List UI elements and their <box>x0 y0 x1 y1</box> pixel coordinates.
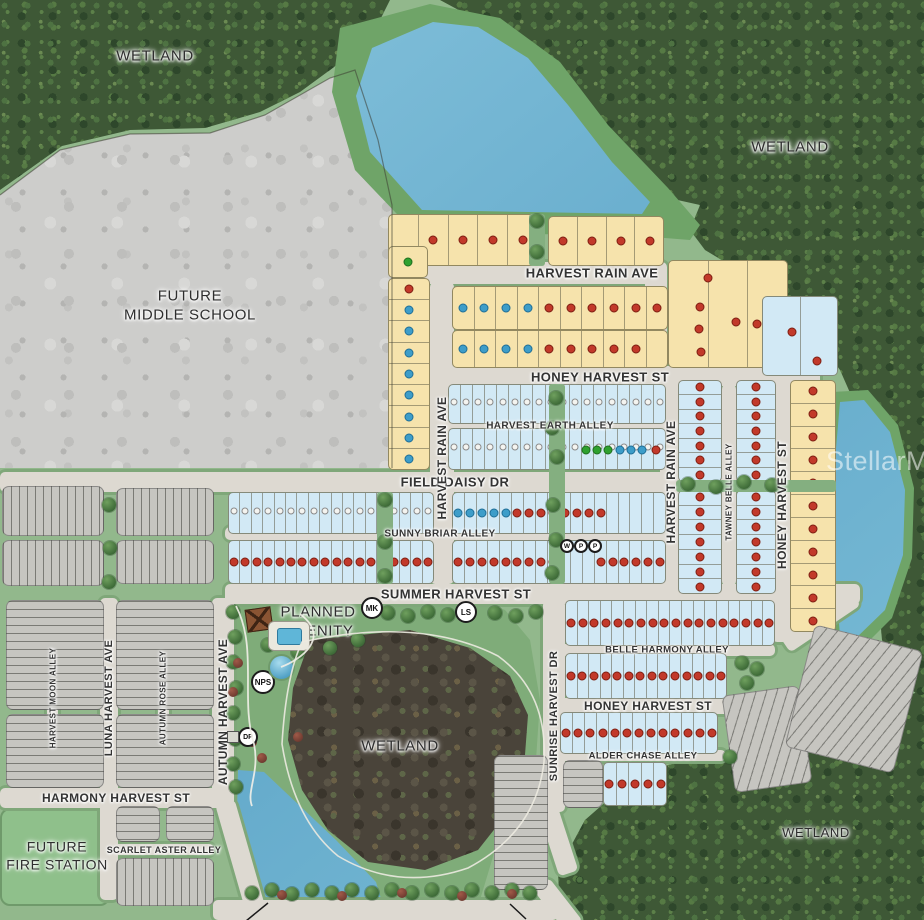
tree-icon <box>441 608 455 622</box>
lot-status-dot <box>695 729 704 738</box>
lot-number-circle <box>451 399 458 406</box>
lot-status-dot <box>613 619 622 628</box>
lot-status-dot <box>596 509 605 518</box>
map-marker-p: P <box>574 539 588 553</box>
lot-status-dot <box>578 672 587 681</box>
lot-status-dot <box>753 619 762 628</box>
lot-number-circle <box>322 507 329 514</box>
lot-status-dot <box>405 391 414 400</box>
lot-status-dot <box>717 672 726 681</box>
lot-status-dot <box>404 258 413 267</box>
tree-icon <box>229 780 243 794</box>
lot-status-dot <box>616 237 625 246</box>
lot-status-dot <box>601 672 610 681</box>
tree-icon <box>530 214 544 228</box>
lot-number-circle <box>310 507 317 514</box>
street-label: SUMMER HARVEST ST <box>381 587 531 602</box>
lot-status-dot <box>809 433 818 442</box>
lot-status-dot <box>638 446 647 455</box>
lot-status-dot <box>683 729 692 738</box>
tree-icon <box>226 605 240 619</box>
shrub-icon <box>257 753 267 763</box>
tree-icon <box>378 493 392 507</box>
lot-status-dot <box>659 672 668 681</box>
lot-status-dot <box>480 345 489 354</box>
lot-block <box>494 755 548 890</box>
lot-status-dot <box>752 508 761 517</box>
street-label: SCARLET ASTER ALLEY <box>107 845 221 855</box>
lot-status-dot <box>636 672 645 681</box>
lot-block <box>563 760 603 808</box>
street-label: HARMONY HARVEST ST <box>42 791 190 805</box>
lot-status-dot <box>465 509 474 518</box>
shrub-icon <box>337 891 347 901</box>
lot-status-dot <box>788 328 797 337</box>
street-label: HONEY HARVEST ST <box>531 370 669 385</box>
lot-number-circle <box>230 507 237 514</box>
lot-status-dot <box>405 370 414 379</box>
street-label: TAWNEY BELLE ALLEY <box>725 443 734 540</box>
street-label: HONEY HARVEST ST <box>775 441 789 569</box>
lot-block <box>762 296 838 376</box>
street-label: HARVEST RAIN AVE <box>664 421 678 544</box>
lot-number-circle <box>572 443 579 450</box>
lot-status-dot <box>696 456 705 465</box>
lot-status-dot <box>653 304 662 313</box>
lot-status-dot <box>405 327 414 336</box>
tree-icon <box>529 605 543 619</box>
lot-status-dot <box>401 558 410 567</box>
lot <box>629 493 641 533</box>
lot-status-dot <box>502 345 511 354</box>
lot-status-dot <box>412 558 421 567</box>
lot-status-dot <box>809 524 818 533</box>
lot-status-dot <box>813 357 822 366</box>
lot <box>618 493 630 533</box>
lot-status-dot <box>298 558 307 567</box>
tree-icon <box>405 886 419 900</box>
tree-icon <box>465 883 479 897</box>
lot-status-dot <box>566 345 575 354</box>
tree-icon <box>488 606 502 620</box>
lot-status-dot <box>405 348 414 357</box>
lot-status-dot <box>525 558 534 567</box>
lot-status-dot <box>574 729 583 738</box>
lot-number-circle <box>608 399 615 406</box>
lot-number-circle <box>276 507 283 514</box>
lot-status-dot <box>558 237 567 246</box>
street-label: HONEY HARVEST ST <box>584 699 712 713</box>
lot-status-dot <box>697 348 706 357</box>
street-label: BELLE HARMONY ALLEY <box>605 645 729 656</box>
lot-status-dot <box>671 729 680 738</box>
tree-icon <box>228 630 242 644</box>
lot-status-dot <box>752 427 761 436</box>
street-label: AUTUMN ROSE ALLEY <box>159 651 168 746</box>
lot-status-dot <box>696 412 705 421</box>
lot-status-dot <box>696 470 705 479</box>
amenity-pond-icon <box>268 654 295 681</box>
lot-status-dot <box>694 672 703 681</box>
lot-number-circle <box>265 507 272 514</box>
lot-status-dot <box>752 538 761 547</box>
lot-block <box>116 858 214 906</box>
lot-status-dot <box>683 619 692 628</box>
lot-status-dot <box>616 446 625 455</box>
lot-status-dot <box>610 729 619 738</box>
tree-icon <box>381 606 395 620</box>
lot-status-dot <box>610 345 619 354</box>
lot-status-dot <box>405 455 414 464</box>
lot-status-dot <box>696 383 705 392</box>
street-label: SUNRISE HARVEST DR <box>548 651 560 781</box>
lot-status-dot <box>636 619 645 628</box>
lot <box>606 493 618 533</box>
tree-icon <box>735 656 749 670</box>
tree-icon <box>378 569 392 583</box>
street-label: AUTUMN HARVEST AVE <box>216 639 230 785</box>
lot-status-dot <box>752 397 761 406</box>
shrub-icon <box>507 889 517 899</box>
lot-status-dot <box>590 619 599 628</box>
lot-status-dot <box>610 304 619 313</box>
lot-status-dot <box>537 509 546 518</box>
lot-status-dot <box>489 509 498 518</box>
lot-status-dot <box>696 552 705 561</box>
street-label: HARVEST EARTH ALLEY <box>486 421 614 432</box>
lot-status-dot <box>309 558 318 567</box>
lot-status-dot <box>696 303 705 312</box>
lot-status-dot <box>695 619 704 628</box>
tree-icon <box>365 886 379 900</box>
lot-status-dot <box>566 672 575 681</box>
lot-status-dot <box>321 558 330 567</box>
lot-number-circle <box>523 443 530 450</box>
lot-status-dot <box>696 538 705 547</box>
lot-status-dot <box>572 509 581 518</box>
lot-status-dot <box>644 558 653 567</box>
tree-icon <box>345 883 359 897</box>
tree-icon <box>737 475 751 489</box>
lot-number-circle <box>425 507 432 514</box>
lot-number-circle <box>413 507 420 514</box>
lot-status-dot <box>252 558 261 567</box>
tree-icon <box>509 609 523 623</box>
lot-status-dot <box>752 383 761 392</box>
street-label: HARVEST RAIN AVE <box>435 397 449 520</box>
street-label: ALDER CHASE ALLEY <box>589 751 698 762</box>
lot-status-dot <box>429 236 438 245</box>
area-label: WETLAND <box>751 139 829 158</box>
lot-status-dot <box>718 619 727 628</box>
area-label: WETLAND <box>116 48 194 67</box>
shrub-icon <box>277 890 287 900</box>
lot-block <box>116 540 214 584</box>
street-label: LUNA HARVEST AVE <box>103 640 115 756</box>
lot-number-circle <box>475 443 482 450</box>
lot-number-circle <box>475 399 482 406</box>
lot-status-dot <box>631 780 640 789</box>
lot-status-dot <box>465 558 474 567</box>
tree-icon <box>681 477 695 491</box>
lot <box>708 261 748 367</box>
lot-number-circle <box>511 443 518 450</box>
lot-number-circle <box>535 443 542 450</box>
lot-block <box>116 488 214 536</box>
tree-icon <box>523 886 537 900</box>
lot-status-dot <box>477 509 486 518</box>
lot-status-dot <box>562 729 571 738</box>
lot-status-dot <box>584 509 593 518</box>
lot-status-dot <box>625 619 634 628</box>
lot-status-dot <box>582 446 591 455</box>
lot-status-dot <box>586 729 595 738</box>
lot-number-circle <box>299 507 306 514</box>
lot-status-dot <box>344 558 353 567</box>
lot-status-dot <box>513 558 522 567</box>
tree-icon <box>425 883 439 897</box>
lot-status-dot <box>241 558 250 567</box>
lot-number-circle <box>368 507 375 514</box>
map-marker-mk: MK <box>361 597 383 619</box>
watermark: StellarMLS <box>826 446 924 477</box>
lot-number-circle <box>535 399 542 406</box>
lot-status-dot <box>523 304 532 313</box>
tree-icon <box>102 498 116 512</box>
lot-status-dot <box>809 502 818 511</box>
lot-status-dot <box>809 570 818 579</box>
lot-status-dot <box>647 729 656 738</box>
lot-status-dot <box>741 619 750 628</box>
lot-status-dot <box>752 412 761 421</box>
lot-status-dot <box>578 619 587 628</box>
lot-status-dot <box>696 567 705 576</box>
lot-status-dot <box>545 345 554 354</box>
lot-status-dot <box>704 274 713 283</box>
lot-status-dot <box>459 236 468 245</box>
lot-status-dot <box>501 509 510 518</box>
amenity-pool-icon <box>277 628 302 645</box>
lot-status-dot <box>696 508 705 517</box>
tree-icon <box>103 541 117 555</box>
lot-number-circle <box>632 399 639 406</box>
lot-status-dot <box>671 619 680 628</box>
lot-status-dot <box>632 558 641 567</box>
tree-icon <box>421 605 435 619</box>
tree-icon <box>245 886 259 900</box>
lot-status-dot <box>656 780 665 789</box>
area-label: FUTURE FIRE STATION <box>6 839 108 874</box>
lot-status-dot <box>809 616 818 625</box>
lot-status-dot <box>458 345 467 354</box>
lot-status-dot <box>489 236 498 245</box>
tree-icon <box>545 566 559 580</box>
lot-status-dot <box>593 446 602 455</box>
lot-status-dot <box>604 446 613 455</box>
map-marker-ls: LS <box>455 601 477 623</box>
lot-number-circle <box>620 399 627 406</box>
lot-status-dot <box>696 582 705 591</box>
lot-status-dot <box>695 325 704 334</box>
lot-status-dot <box>453 558 462 567</box>
lot-number-circle <box>463 399 470 406</box>
lot <box>641 493 653 533</box>
street-label: HARVEST RAIN AVE <box>526 266 659 281</box>
lot-status-dot <box>566 304 575 313</box>
lot-number-circle <box>572 399 579 406</box>
lot-status-dot <box>566 619 575 628</box>
lot-block <box>116 806 160 842</box>
tree-icon <box>549 391 563 405</box>
lot-number-circle <box>644 399 651 406</box>
street-label: HARVEST MOON ALLEY <box>49 648 58 749</box>
area-label: WETLAND <box>361 738 439 757</box>
lot-number-circle <box>656 399 663 406</box>
lot-status-dot <box>682 672 691 681</box>
lot-status-dot <box>545 304 554 313</box>
lot-status-dot <box>229 558 238 567</box>
lot-status-dot <box>620 558 629 567</box>
area-label: WETLAND <box>782 825 850 841</box>
shrub-icon <box>457 891 467 901</box>
lot-status-dot <box>752 456 761 465</box>
lot-status-dot <box>405 412 414 421</box>
lot-status-dot <box>405 306 414 315</box>
lot-status-dot <box>670 672 679 681</box>
lot-number-circle <box>584 399 591 406</box>
lot-status-dot <box>705 672 714 681</box>
tree-icon <box>709 480 723 494</box>
shrub-icon <box>293 732 303 742</box>
lot-status-dot <box>752 552 761 561</box>
lot-status-dot <box>332 558 341 567</box>
lot-status-dot <box>809 547 818 556</box>
lot-status-dot <box>480 304 489 313</box>
lot-status-dot <box>537 558 546 567</box>
lot-status-dot <box>453 509 462 518</box>
lot-status-dot <box>643 780 652 789</box>
tree-icon <box>740 676 754 690</box>
lot-status-dot <box>631 304 640 313</box>
tree-icon <box>723 750 737 764</box>
lot-status-dot <box>502 304 511 313</box>
lot-number-circle <box>463 443 470 450</box>
tree-icon <box>401 609 415 623</box>
lot-status-dot <box>765 619 774 628</box>
lot-status-dot <box>696 441 705 450</box>
lot-status-dot <box>275 558 284 567</box>
lot-status-dot <box>809 456 818 465</box>
lot-status-dot <box>809 410 818 419</box>
lot-status-dot <box>752 523 761 532</box>
lot-status-dot <box>809 387 818 396</box>
shrub-icon <box>233 658 243 668</box>
lot-status-dot <box>696 427 705 436</box>
green-corridor <box>549 384 565 584</box>
lot-status-dot <box>696 397 705 406</box>
lot-status-dot <box>660 619 669 628</box>
lot-status-dot <box>596 558 605 567</box>
tree-icon <box>285 887 299 901</box>
lot-number-circle <box>451 443 458 450</box>
lot-status-dot <box>752 567 761 576</box>
lot-number-circle <box>356 507 363 514</box>
lot-status-dot <box>706 619 715 628</box>
lot-number-circle <box>499 443 506 450</box>
lot-block <box>2 540 104 586</box>
lot-block <box>166 806 214 842</box>
lot-status-dot <box>645 237 654 246</box>
lot-status-dot <box>405 434 414 443</box>
lot-status-dot <box>618 780 627 789</box>
lot-status-dot <box>355 558 364 567</box>
tree-icon <box>550 450 564 464</box>
lot-status-dot <box>587 237 596 246</box>
lot-status-dot <box>732 318 741 327</box>
lot-status-dot <box>647 672 656 681</box>
street-label: FIELD DAISY DR <box>401 475 510 490</box>
street-label: SUNNY BRIAR ALLEY <box>384 529 495 540</box>
lot-status-dot <box>525 509 534 518</box>
lot-status-dot <box>523 345 532 354</box>
lot-status-dot <box>458 304 467 313</box>
lot-status-dot <box>264 558 273 567</box>
lot-status-dot <box>707 729 716 738</box>
lot-status-dot <box>286 558 295 567</box>
lot-number-circle <box>499 399 506 406</box>
lot-number-circle <box>333 507 340 514</box>
lot-status-dot <box>648 619 657 628</box>
lot-number-circle <box>596 399 603 406</box>
lot-status-dot <box>631 345 640 354</box>
map-marker-dp: DP <box>238 727 258 747</box>
lot-status-dot <box>753 320 762 329</box>
lot-number-circle <box>242 507 249 514</box>
lot-status-dot <box>696 493 705 502</box>
lot-status-dot <box>405 284 414 293</box>
lot-status-dot <box>501 558 510 567</box>
lot-block <box>2 486 104 536</box>
map-marker-p: P <box>588 539 602 553</box>
lot-status-dot <box>605 780 614 789</box>
lot-status-dot <box>601 619 610 628</box>
lot-status-dot <box>624 672 633 681</box>
lot-status-dot <box>519 236 528 245</box>
tree-icon <box>485 886 499 900</box>
tree-icon <box>102 575 116 589</box>
lot-status-dot <box>752 441 761 450</box>
lot-status-dot <box>656 558 665 567</box>
lot-status-dot <box>752 582 761 591</box>
lot-number-circle <box>287 507 294 514</box>
lot-status-dot <box>598 729 607 738</box>
dog-park-icon <box>227 731 239 743</box>
lot-status-dot <box>608 558 617 567</box>
lot-status-dot <box>588 304 597 313</box>
lot-status-dot <box>752 470 761 479</box>
lot-status-dot <box>635 729 644 738</box>
lot-status-dot <box>730 619 739 628</box>
street-bottom-road <box>213 900 558 920</box>
lot <box>646 331 668 367</box>
lot-number-circle <box>253 507 260 514</box>
lot-number-circle <box>487 399 494 406</box>
lot-status-dot <box>613 672 622 681</box>
lot-status-dot <box>477 558 486 567</box>
lot-number-circle <box>523 399 530 406</box>
lot-status-dot <box>367 558 376 567</box>
area-label: FUTURE MIDDLE SCHOOL <box>124 287 256 325</box>
